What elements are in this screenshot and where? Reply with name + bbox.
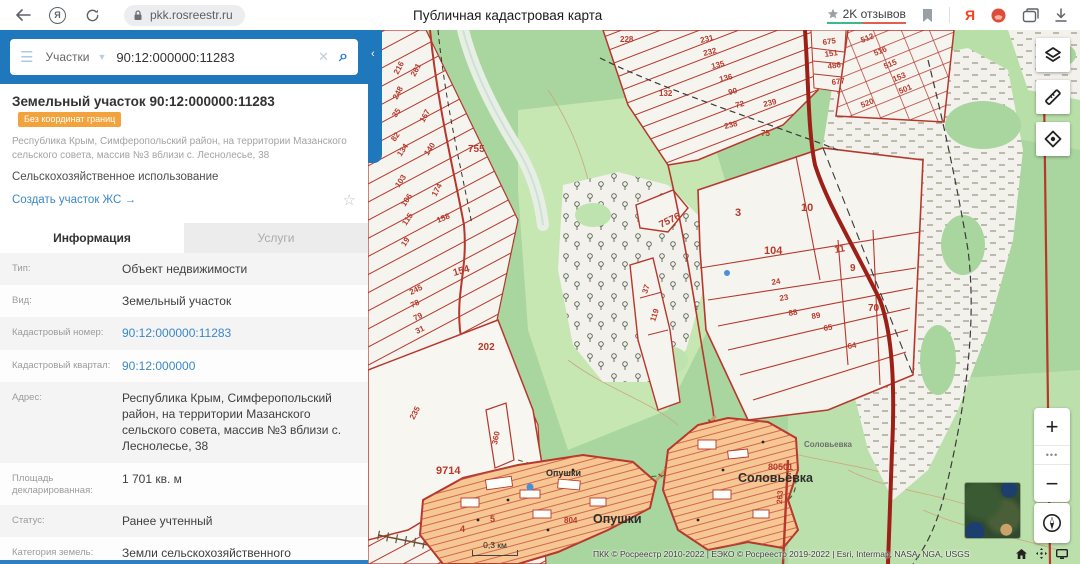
map-label: 3 <box>735 207 741 219</box>
info-row: Площадь декларированная:1 701 кв. м <box>0 463 368 506</box>
map-label: 132 <box>659 89 673 98</box>
star-icon <box>827 8 839 20</box>
map-label: 4 <box>460 524 465 534</box>
info-row-value-link[interactable]: 90:12:000000 <box>122 358 356 374</box>
map-label: Соловьёвка <box>738 471 814 485</box>
info-row-value: Земельный участок <box>122 293 356 309</box>
info-row-label: Тип: <box>12 261 122 277</box>
info-row: Адрес:Республика Крым, Симферопольский р… <box>0 382 368 463</box>
map-label: 486 <box>827 60 842 71</box>
create-plot-link[interactable]: Создать участок ЖС → <box>12 194 136 206</box>
map-label: 70 <box>868 303 880 314</box>
map-label: Опушки <box>546 468 581 478</box>
scale-control: 0,3 км <box>472 540 518 556</box>
object-usage: Сельскохозяйственное использование <box>12 171 356 183</box>
panel-collapse-tab[interactable]: ‹ <box>368 30 382 163</box>
chevron-down-icon[interactable]: ▼ <box>97 52 106 62</box>
panel-tabs: Информация Услуги <box>0 223 368 253</box>
toolbar-divider <box>949 7 950 23</box>
screen: Я pkk.rosreestr.ru Публичная кадастровая… <box>0 0 1080 564</box>
info-row: Кадастровый номер:90:12:000000:11283 <box>0 317 368 349</box>
map-label: 104 <box>764 245 783 257</box>
yandex-services-icon[interactable]: Я <box>49 7 66 24</box>
object-address-short: Республика Крым, Симферопольский район, … <box>12 135 356 162</box>
no-borders-badge: Без координат границ <box>18 112 121 127</box>
info-row: Вид:Земельный участок <box>0 285 368 317</box>
map-viewport[interactable]: 2282312321351369072239238751326751514866… <box>368 30 1080 564</box>
info-row-label: Вид: <box>12 293 122 309</box>
map-label: Соловьевка <box>804 440 853 449</box>
scale-line <box>472 550 518 556</box>
fullscreen-icon[interactable] <box>1056 549 1068 559</box>
tab-information[interactable]: Информация <box>0 223 184 253</box>
extension-icon[interactable] <box>990 7 1007 24</box>
zoom-control: + ••• − <box>1034 408 1070 502</box>
map-label: 151 <box>824 48 839 59</box>
map-label: 75 <box>761 129 770 138</box>
url-text: pkk.rosreestr.ru <box>150 8 233 22</box>
map-label: Опушки <box>593 512 642 526</box>
clear-search-icon[interactable]: ✕ <box>318 49 329 65</box>
pan-icon[interactable] <box>1036 548 1047 559</box>
zoom-more-button[interactable]: ••• <box>1034 445 1070 465</box>
map-label: 755 <box>468 144 485 155</box>
search-category-select[interactable]: Участки <box>45 50 89 64</box>
map-label: 677 <box>831 76 846 87</box>
zoom-in-button[interactable]: + <box>1034 408 1070 445</box>
locate-object-button[interactable] <box>1036 122 1070 156</box>
basemap-preview[interactable] <box>965 483 1020 538</box>
info-row: Тип:Объект недвижимости <box>0 253 368 285</box>
back-icon[interactable] <box>14 6 32 24</box>
info-row-value: Ранее учтенный <box>122 513 356 529</box>
info-row: Кадастровый квартал:90:12:000000 <box>0 350 368 382</box>
info-row-label: Адрес: <box>12 390 122 455</box>
bookmark-icon[interactable] <box>921 8 934 23</box>
layers-button[interactable] <box>1036 38 1070 72</box>
info-row-label: Площадь декларированная: <box>12 471 122 498</box>
search-bar: ☰ Участки ▼ ✕ ⌕ <box>10 39 358 75</box>
info-row-value: Объект недвижимости <box>122 261 356 277</box>
compass-icon <box>1041 512 1063 534</box>
download-icon[interactable] <box>1054 8 1068 23</box>
search-icon[interactable]: ⌕ <box>339 48 348 66</box>
map-label: 202 <box>478 342 495 353</box>
main-area: ☰ Участки ▼ ✕ ⌕ Земельный участок 90:12:… <box>0 30 1080 564</box>
zoom-out-button[interactable]: − <box>1034 465 1070 502</box>
reviews-rating[interactable]: 2K отзывов <box>827 7 906 24</box>
layers-icon <box>1043 45 1063 65</box>
panel-footer-accent <box>0 560 368 564</box>
collapse-chevron-icon: ‹ <box>371 48 375 60</box>
position-icon <box>1043 129 1063 149</box>
map-label: 263 <box>775 490 785 504</box>
map-label: 10 <box>801 202 813 214</box>
yandex-browser-icon[interactable]: Я <box>965 7 975 23</box>
map-label: 9714 <box>436 465 461 477</box>
search-header: ☰ Участки ▼ ✕ ⌕ <box>0 30 368 84</box>
map-label: 228 <box>620 35 634 44</box>
object-header: Земельный участок 90:12:000000:11283Без … <box>0 84 368 215</box>
browser-tab-title: Публичная кадастровая карта <box>413 0 602 30</box>
object-title: Земельный участок 90:12:000000:11283 <box>12 94 275 109</box>
object-info-panel: ☰ Участки ▼ ✕ ⌕ Земельный участок 90:12:… <box>0 30 368 564</box>
info-row-label: Статус: <box>12 513 122 529</box>
map-attribution: ПКК © Росреестр 2010-2022 | ЕЭКО © Росре… <box>593 548 1068 559</box>
ruler-icon <box>1043 87 1063 107</box>
info-row-value-link[interactable]: 90:12:000000:11283 <box>122 325 356 341</box>
info-row-value: Республика Крым, Симферопольский район, … <box>122 390 356 455</box>
menu-icon[interactable]: ☰ <box>20 48 33 66</box>
map-label: 9 <box>850 263 856 274</box>
scale-label: 0,3 км <box>472 540 518 550</box>
search-input[interactable] <box>116 50 308 65</box>
info-row-label: Кадастровый квартал: <box>12 358 122 374</box>
my-location-button[interactable] <box>1034 503 1070 543</box>
reload-icon[interactable] <box>83 6 101 24</box>
lock-icon <box>132 9 144 22</box>
home-icon[interactable] <box>1016 549 1027 559</box>
favorite-star-icon[interactable]: ☆ <box>343 191 356 209</box>
address-bar[interactable]: pkk.rosreestr.ru <box>124 5 245 26</box>
map-label: 675 <box>822 36 837 47</box>
info-row-value: 1 701 кв. м <box>122 471 356 498</box>
tab-services[interactable]: Услуги <box>184 223 368 253</box>
info-rows: Тип:Объект недвижимостиВид:Земельный уча… <box>0 253 368 564</box>
browser-toolbar: Я pkk.rosreestr.ru Публичная кадастровая… <box>0 0 1080 30</box>
info-row: Статус:Ранее учтенный <box>0 505 368 537</box>
map-label: 804 <box>564 516 578 525</box>
map-label: 5 <box>490 514 495 524</box>
collections-icon[interactable] <box>1022 8 1039 23</box>
attribution-text: ПКК © Росреестр 2010-2022 | ЕЭКО © Росре… <box>593 549 970 559</box>
measure-button[interactable] <box>1036 80 1070 114</box>
info-row-label: Кадастровый номер: <box>12 325 122 341</box>
